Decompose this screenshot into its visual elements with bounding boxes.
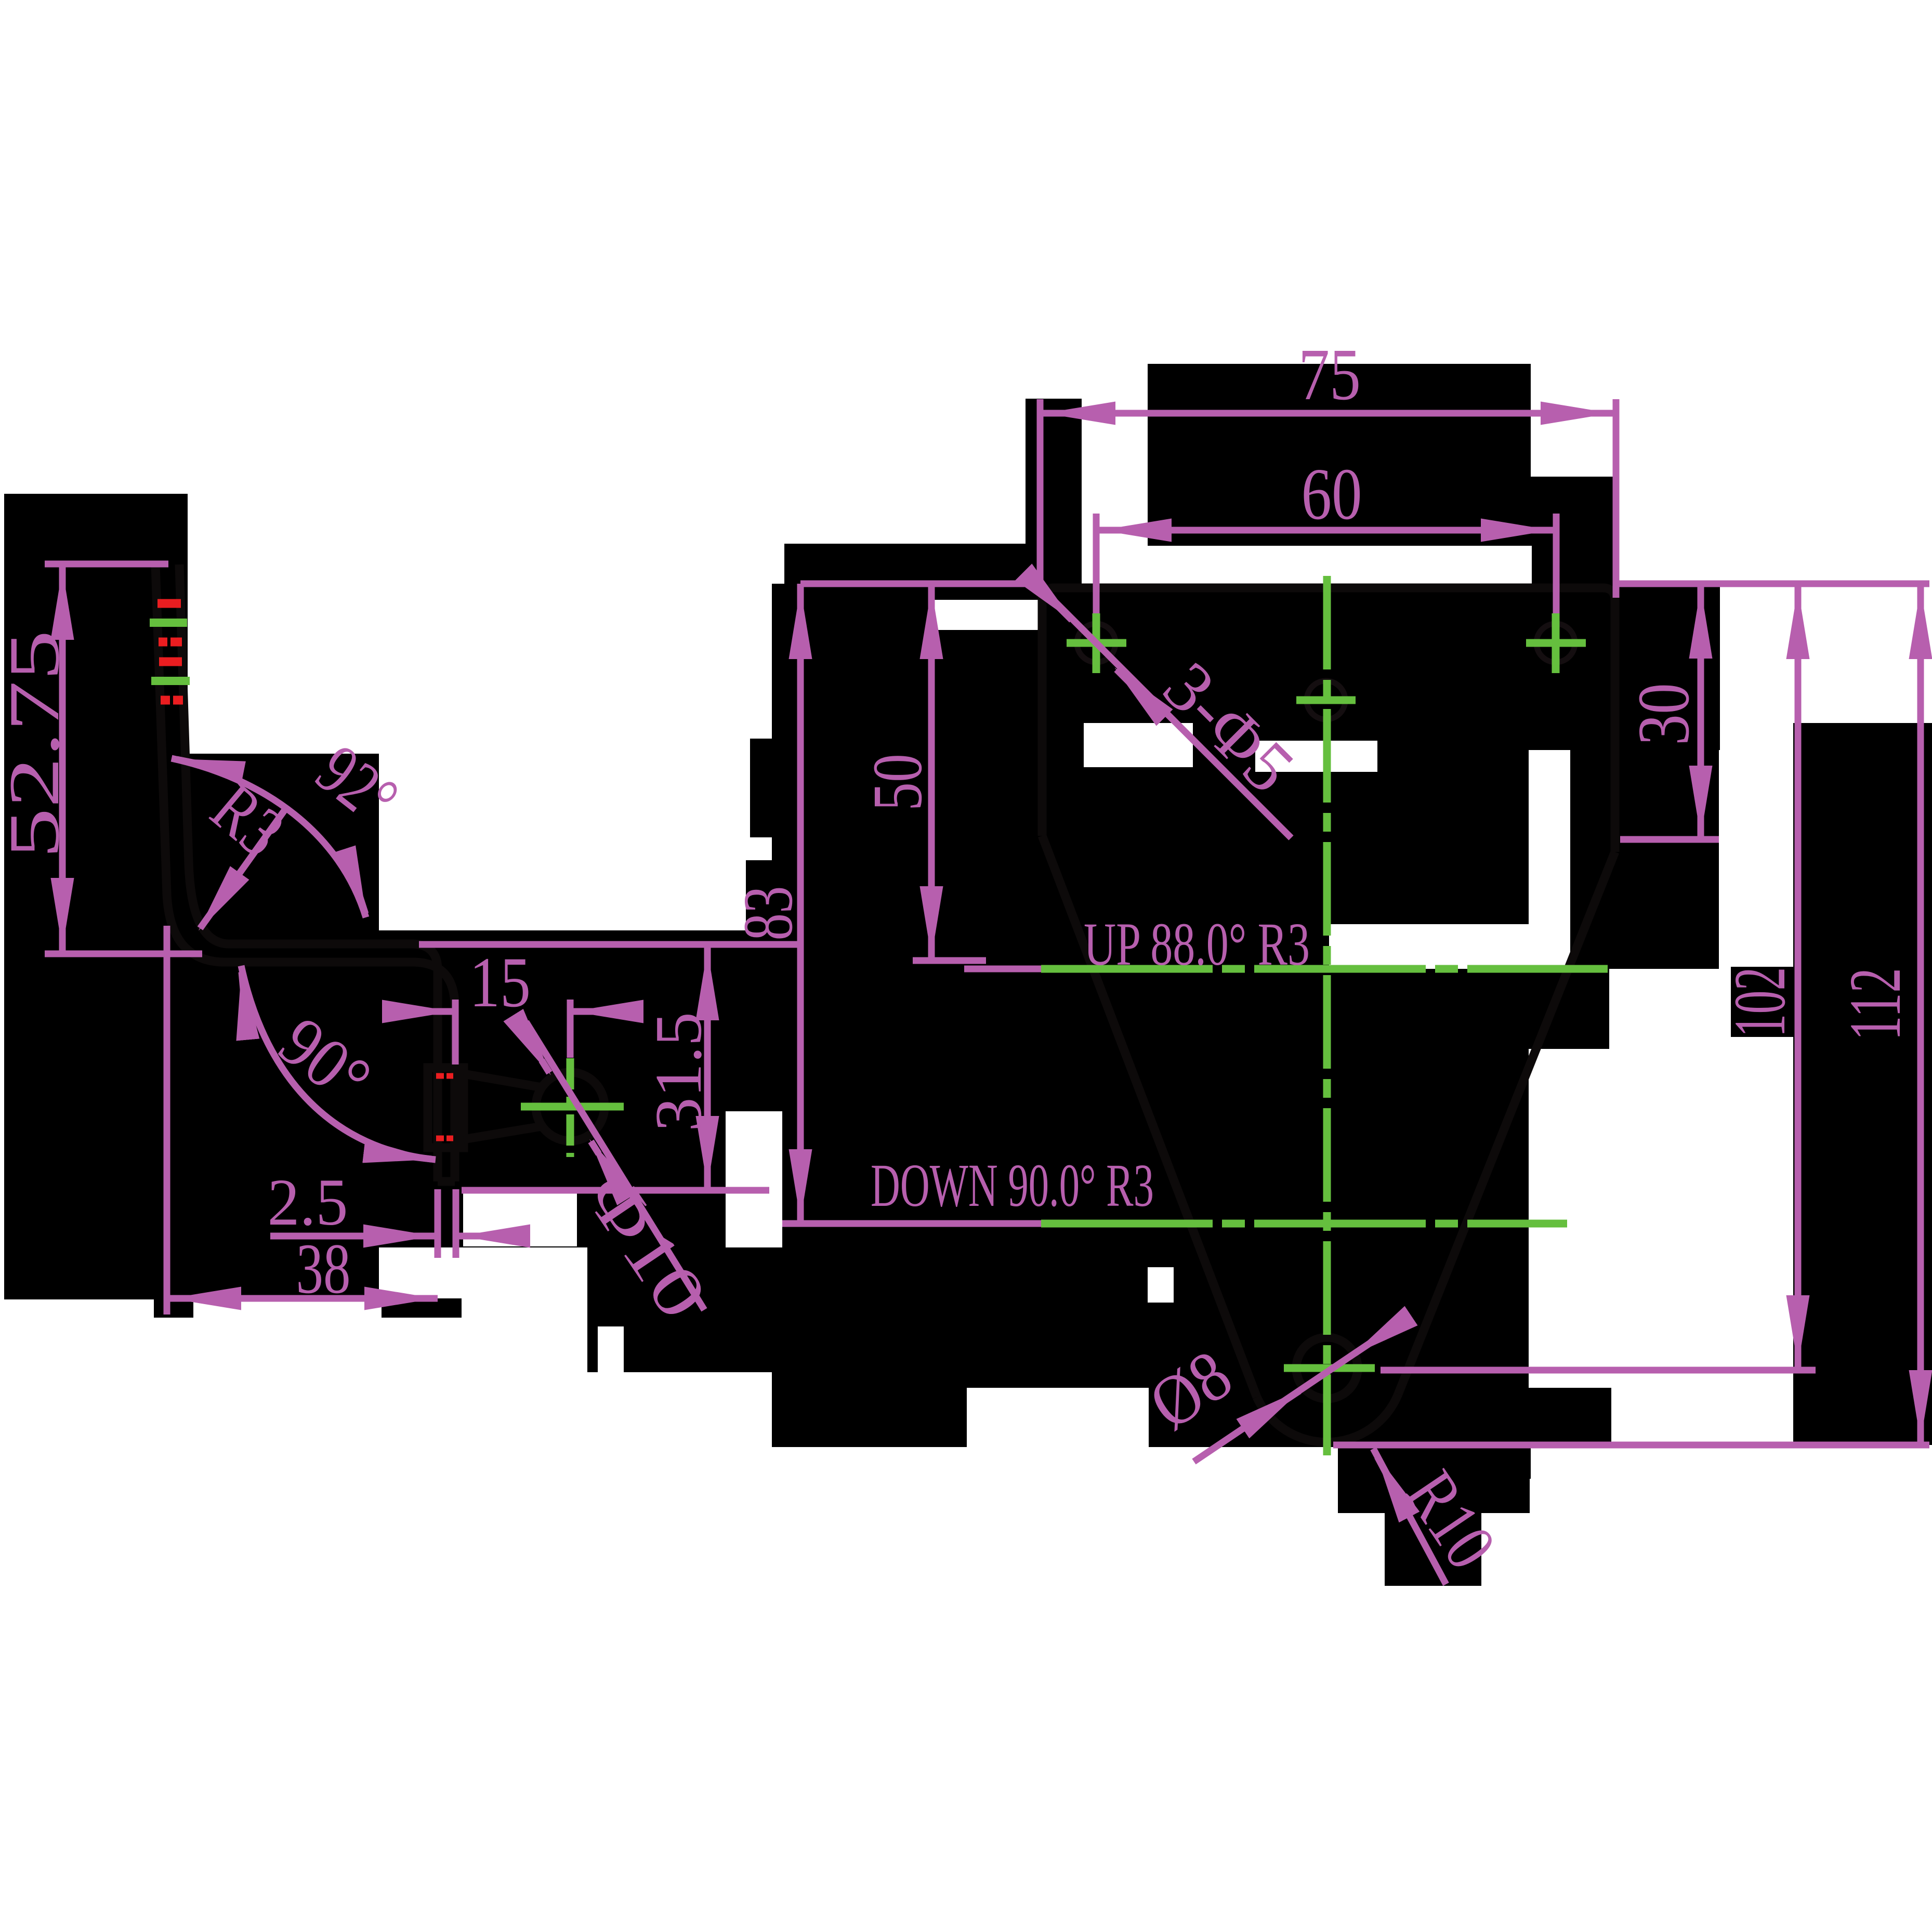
svg-text:15: 15 — [469, 942, 531, 1022]
svg-text:83: 83 — [729, 886, 807, 941]
svg-text:60: 60 — [1302, 453, 1362, 535]
svg-text:50: 50 — [859, 754, 937, 811]
svg-text:31.5: 31.5 — [641, 1012, 715, 1132]
svg-text:38: 38 — [296, 1229, 351, 1308]
svg-text:2.5: 2.5 — [268, 1165, 348, 1239]
svg-text:DOWN 90.0° R3: DOWN 90.0° R3 — [871, 1151, 1154, 1219]
svg-text:112: 112 — [1834, 968, 1916, 1041]
svg-text:102: 102 — [1718, 967, 1800, 1037]
svg-text:52.75: 52.75 — [0, 630, 74, 859]
svg-text:30: 30 — [1622, 683, 1704, 745]
svg-text:UP 88.0° R3: UP 88.0° R3 — [1084, 910, 1310, 978]
svg-text:75: 75 — [1298, 333, 1361, 415]
